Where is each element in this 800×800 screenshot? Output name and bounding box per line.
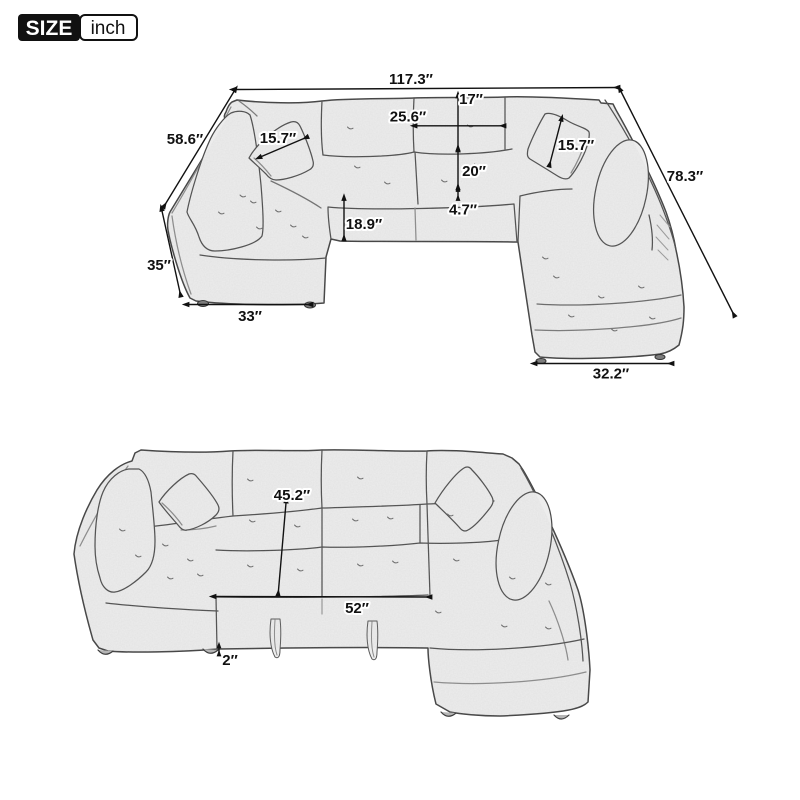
svg-text:52″: 52″ <box>345 600 369 617</box>
svg-text:18.9″: 18.9″ <box>346 216 382 233</box>
svg-text:inch: inch <box>91 18 126 39</box>
svg-text:17″: 17″ <box>459 91 483 108</box>
svg-text:117.3″: 117.3″ <box>389 71 433 88</box>
svg-text:15.7″: 15.7″ <box>558 137 594 154</box>
svg-text:20″: 20″ <box>462 163 486 180</box>
svg-text:15.7″: 15.7″ <box>260 130 296 147</box>
svg-text:4.7″: 4.7″ <box>449 202 477 219</box>
svg-text:78.3″: 78.3″ <box>667 168 703 185</box>
svg-text:35″: 35″ <box>147 257 171 274</box>
svg-text:25.6″: 25.6″ <box>390 109 426 126</box>
svg-text:2″: 2″ <box>222 652 238 669</box>
svg-text:32.2″: 32.2″ <box>593 366 629 383</box>
svg-text:45.2″: 45.2″ <box>274 487 310 504</box>
svg-text:33″: 33″ <box>238 308 262 325</box>
svg-text:58.6″: 58.6″ <box>167 131 203 148</box>
svg-text:SIZE: SIZE <box>26 17 73 40</box>
